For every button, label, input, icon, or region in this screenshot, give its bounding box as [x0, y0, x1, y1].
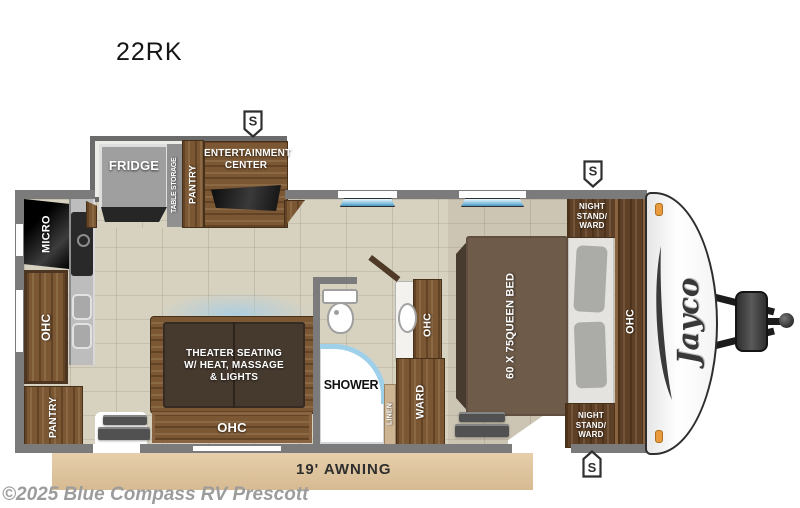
queen-bed-label-wrap: 60 X 75 QUEEN BED [488, 248, 534, 404]
queen-bed-label: 60 X 75 QUEEN BED [488, 248, 534, 404]
bed-label-line2: QUEEN BED [504, 273, 519, 340]
wall-bottom-left [15, 444, 93, 453]
hitch-ball [779, 313, 794, 328]
bed-label-line1: 60 X 75 [504, 340, 519, 379]
window-top-2-glass [461, 198, 524, 207]
bedroom-ohc: OHC [615, 195, 646, 448]
table-storage-label-wrap: TABLE STORAGE [165, 144, 184, 227]
entertainment-label-line1: ENTERTAINMENT [204, 148, 288, 160]
night-stand-top-label: NIGHT STAND/ WARD [568, 196, 616, 237]
speaker-letter: S [588, 460, 597, 475]
living-ohc-label: OHC [155, 415, 309, 440]
entry-step-right-lower [455, 424, 509, 437]
night-stand-bottom-label: NIGHT STAND/ WARD [566, 404, 616, 447]
night-stand-bottom: NIGHT STAND/ WARD [565, 403, 617, 448]
kitchen-sink-bowl-1 [72, 294, 92, 320]
entry-step-left-upper [103, 415, 147, 425]
window-top-2 [459, 191, 526, 198]
window-top-1 [338, 191, 397, 198]
kitchen-ohc: OHC [24, 270, 68, 384]
ward-label: WARD [397, 359, 444, 444]
speaker-marker-bedroom-bottom: S [582, 450, 602, 478]
theater-seating-label: THEATER SEATING W/ HEAT, MASSAGE & LIGHT… [160, 348, 308, 384]
window-rear-1 [16, 224, 23, 256]
entertainment-label-line2: CENTER [204, 160, 288, 172]
marker-light-bottom [655, 430, 663, 443]
propane-tank-cover [735, 291, 768, 352]
night-stand-top: NIGHT STAND/ WARD [567, 195, 617, 238]
shower-label: SHOWER [319, 378, 383, 392]
page-title: 22RK [116, 38, 183, 67]
living-ohc: OHC [152, 412, 312, 443]
fridge [99, 144, 169, 210]
slide-pantry: PANTRY [182, 140, 204, 228]
entry-step-right-upper [459, 412, 505, 422]
window-rear-2 [16, 290, 23, 352]
speaker-letter: S [589, 164, 598, 179]
night-stand-bottom-line1: NIGHT [578, 411, 604, 421]
linen-cabinet: LINEN [384, 384, 396, 445]
watermark: ©2025 Blue Compass RV Prescott [2, 484, 309, 506]
fridge-door-open [101, 207, 167, 222]
kitchen-sink-bowl-2 [72, 323, 92, 349]
night-stand-bottom-line3: WARD [578, 430, 603, 440]
microwave: MICRO [24, 199, 69, 269]
night-stand-top-line3: WARD [579, 221, 604, 231]
pillow-2 [574, 321, 607, 388]
bedroom-ohc-label: OHC [618, 198, 643, 445]
wall-top-left [15, 190, 95, 199]
theater-label-line3: & LIGHTS [160, 372, 308, 384]
speaker-marker-bedroom-top: S [583, 160, 603, 188]
theater-label-line2: W/ HEAT, MASSAGE [160, 360, 308, 372]
theater-label-line1: THEATER SEATING [160, 348, 308, 360]
bath-wall-vertical [313, 277, 320, 444]
kitchen-pantry-label: PANTRY [25, 387, 82, 447]
speaker-marker-entertainment: S [243, 110, 263, 138]
cooktop-burner [77, 234, 90, 247]
window-bottom [193, 446, 281, 451]
fridge-label: FRIDGE [99, 158, 169, 173]
marker-light-top [655, 203, 663, 216]
linen-label: LINEN [385, 385, 395, 444]
toilet-bowl [327, 302, 354, 334]
awning-label: 19' AWNING [296, 461, 392, 478]
slide-pantry-label: PANTRY [183, 141, 203, 227]
floorplan-image: 22RK 19' AWNING FRIDGE TABLE STORAGE PAN… [0, 0, 800, 508]
entry-step-left-lower [98, 427, 150, 440]
bath-wall-stub [313, 277, 357, 284]
kitchen-ohc-label: OHC [27, 273, 65, 381]
night-stand-top-line1: NIGHT [579, 202, 605, 212]
night-stand-top-line2: STAND/ [577, 212, 607, 222]
vanity-sink [398, 303, 417, 333]
speaker-letter: S [249, 114, 258, 129]
window-top-1-glass [340, 198, 395, 207]
kitchen-pantry: PANTRY [24, 386, 83, 448]
microwave-label: MICRO [24, 199, 69, 269]
ward-cabinet: WARD [396, 358, 445, 445]
jayco-bird-icon [652, 236, 676, 406]
table-storage-label: TABLE STORAGE [165, 144, 184, 227]
pillow-1 [573, 245, 607, 313]
entertainment-center-label: ENTERTAINMENT CENTER [204, 148, 288, 172]
toilet-flush-button [334, 310, 339, 315]
night-stand-bottom-line2: STAND/ [576, 421, 606, 431]
jayco-logo: Jayco [671, 239, 709, 403]
